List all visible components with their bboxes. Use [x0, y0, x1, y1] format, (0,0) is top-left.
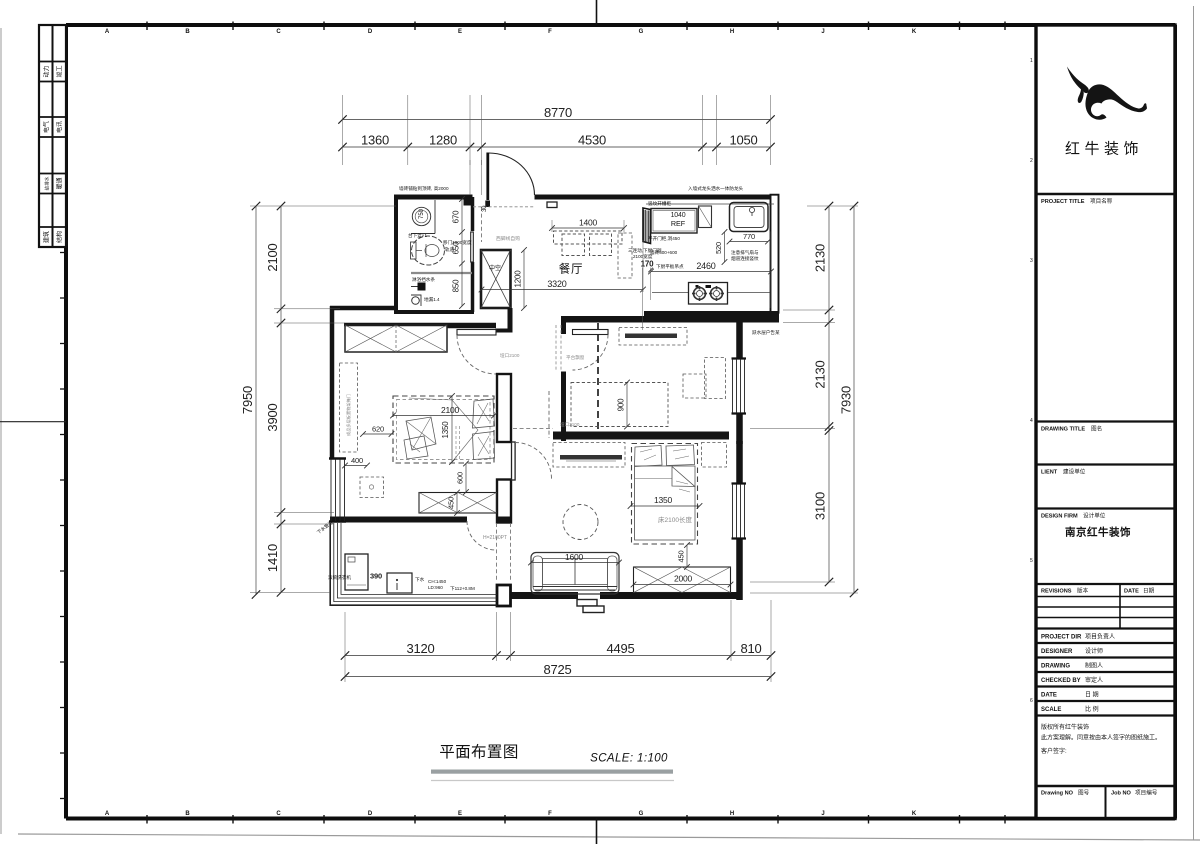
svg-text:动力: 动力: [43, 65, 51, 77]
svg-text:DESIGN FIRM: DESIGN FIRM: [1041, 514, 1078, 520]
svg-text:图名: 图名: [1091, 425, 1102, 433]
svg-text:设计单位: 设计单位: [1083, 512, 1106, 520]
svg-text:建筑: 建筑: [43, 231, 51, 243]
svg-text:床2100长度: 床2100长度: [658, 515, 692, 524]
svg-text:3320: 3320: [547, 279, 566, 289]
svg-text:2000: 2000: [674, 574, 693, 584]
svg-text:入墙式龙头洒水一体防龙头: 入墙式龙头洒水一体防龙头: [688, 185, 744, 192]
svg-text:西脚线自购: 西脚线自购: [496, 235, 520, 242]
svg-text:客户签字:: 客户签字:: [1041, 747, 1067, 755]
svg-text:DRAWING: DRAWING: [1041, 664, 1070, 670]
svg-text:400: 400: [351, 456, 363, 465]
svg-text:淋浴挡水条: 淋浴挡水条: [412, 276, 435, 283]
svg-text:结构: 结构: [56, 231, 64, 243]
svg-text:B: B: [185, 29, 190, 35]
svg-text:4530: 4530: [578, 133, 606, 148]
svg-text:3900: 3900: [265, 403, 280, 431]
svg-text:竖纹开槽柜: 竖纹开槽柜: [648, 200, 671, 207]
svg-text:1040: 1040: [671, 212, 686, 219]
svg-text:C: C: [276, 811, 281, 817]
svg-text:滚筒洗衣机: 滚筒洗衣机: [328, 574, 351, 581]
svg-text:7930: 7930: [839, 386, 854, 414]
svg-text:5: 5: [1030, 558, 1033, 564]
svg-text:E: E: [458, 29, 462, 35]
svg-text:670: 670: [452, 210, 461, 223]
svg-text:770: 770: [743, 232, 755, 241]
svg-text:F: F: [548, 811, 552, 817]
svg-text:DESIGNER: DESIGNER: [1041, 649, 1073, 655]
svg-text:H=2100PT: H=2100PT: [483, 535, 507, 541]
svg-text:电气: 电气: [43, 121, 51, 133]
svg-text:项目负责人: 项目负责人: [1085, 633, 1115, 641]
svg-text:K: K: [912, 811, 917, 817]
svg-text:REF: REF: [671, 219, 686, 228]
svg-text:H: H: [730, 811, 734, 817]
svg-text:6: 6: [1030, 698, 1033, 704]
svg-text:给排水: 给排水: [44, 176, 51, 190]
svg-text:8770: 8770: [544, 105, 572, 120]
svg-text:4495: 4495: [606, 641, 634, 656]
svg-text:2100: 2100: [265, 243, 280, 271]
svg-text:F: F: [548, 29, 552, 35]
svg-text:SCALE: 1:100: SCALE: 1:100: [590, 753, 668, 765]
svg-text:600: 600: [456, 472, 465, 484]
svg-text:注意排气扇与: 注意排气扇与: [731, 249, 759, 256]
svg-text:J: J: [821, 29, 824, 35]
svg-text:1410: 1410: [265, 544, 280, 572]
svg-text:390: 390: [370, 572, 382, 581]
svg-text:下水: 下水: [415, 576, 425, 583]
svg-text:Job NO: Job NO: [1111, 791, 1132, 797]
svg-text:南京红牛装饰: 南京红牛装饰: [1065, 526, 1131, 539]
svg-text:450: 450: [677, 551, 686, 563]
svg-text:比 例: 比 例: [1085, 705, 1099, 713]
svg-text:2460: 2460: [696, 261, 715, 271]
svg-text:垭口2100: 垭口2100: [560, 421, 580, 428]
svg-text:1: 1: [1030, 58, 1033, 64]
svg-text:审定人: 审定人: [1085, 676, 1103, 684]
svg-text:此方案理解。同意按由本人签字的图纸施工。: 此方案理解。同意按由本人签字的图纸施工。: [1041, 734, 1161, 742]
svg-text:建设单位: 建设单位: [1063, 468, 1086, 476]
svg-text:中空: 中空: [489, 264, 501, 272]
svg-text:1050: 1050: [729, 133, 757, 148]
svg-text:C: C: [276, 29, 281, 35]
svg-text:7950: 7950: [240, 386, 255, 414]
svg-text:台下盆×1: 台下盆×1: [408, 232, 427, 239]
svg-text:A: A: [105, 29, 110, 35]
svg-text:版权所有红牛装饰: 版权所有红牛装饰: [1041, 723, 1089, 731]
svg-text:810: 810: [740, 641, 761, 656]
svg-text:2130: 2130: [813, 360, 828, 388]
svg-text:LD:960: LD:960: [428, 585, 443, 590]
svg-text:餐厅: 餐厅: [559, 262, 584, 276]
svg-text:1600: 1600: [565, 552, 584, 562]
svg-text:PROJECT TITLE: PROJECT TITLE: [1041, 199, 1085, 205]
svg-text:CH:1450: CH:1450: [428, 579, 447, 584]
svg-text:3: 3: [1030, 258, 1033, 264]
svg-text:日期: 日期: [1143, 588, 1155, 595]
svg-text:1200: 1200: [514, 270, 523, 288]
svg-text:D: D: [368, 29, 373, 35]
svg-text:K: K: [912, 29, 917, 35]
svg-text:下厨平板吊点: 下厨平板吊点: [656, 263, 684, 270]
svg-text:制图人: 制图人: [1085, 662, 1103, 670]
svg-text:版本: 版本: [1077, 587, 1089, 595]
svg-text:地漏1.4: 地漏1.4: [424, 296, 440, 303]
svg-text:850: 850: [452, 279, 461, 292]
svg-text:项目编号: 项目编号: [1135, 789, 1158, 797]
svg-text:B: B: [185, 811, 190, 817]
svg-text:1350: 1350: [654, 495, 673, 505]
svg-text:CHECKED BY: CHECKED BY: [1041, 678, 1081, 684]
svg-text:650: 650: [452, 241, 461, 254]
svg-text:竣工: 竣工: [56, 65, 64, 77]
svg-text:图号: 图号: [1078, 789, 1090, 797]
svg-text:8725: 8725: [543, 662, 571, 677]
svg-text:日 期: 日 期: [1085, 691, 1099, 699]
svg-text:SCALE: SCALE: [1041, 707, 1061, 713]
svg-text:平面布置图: 平面布置图: [439, 743, 519, 761]
svg-text:D: D: [368, 811, 373, 817]
svg-text:PROJECT DIR: PROJECT DIR: [1041, 635, 1082, 641]
svg-text:垭口2100: 垭口2100: [500, 352, 520, 359]
svg-text:平开门柜,洞450: 平开门柜,洞450: [648, 235, 680, 242]
svg-text:墙砖铺贴到顶砖, 高2000: 墙砖铺贴到顶砖, 高2000: [399, 185, 449, 192]
svg-text:跃水层户告某: 跃水层户告某: [752, 329, 780, 336]
svg-text:30: 30: [482, 205, 488, 212]
svg-text:G: G: [639, 29, 644, 35]
svg-text:2100: 2100: [441, 405, 460, 415]
svg-text:Drawing NO: Drawing NO: [1041, 791, 1074, 797]
svg-text:900: 900: [617, 398, 626, 411]
svg-text:750: 750: [419, 208, 425, 219]
svg-text:1280: 1280: [429, 133, 457, 148]
svg-text:4: 4: [1030, 418, 1033, 424]
svg-text:暖通: 暖通: [56, 177, 64, 189]
svg-text:520: 520: [714, 242, 723, 254]
svg-text:E: E: [458, 811, 462, 817]
svg-text:620: 620: [372, 425, 384, 434]
svg-text:3100: 3100: [813, 492, 828, 520]
svg-text:红牛装饰: 红牛装饰: [1065, 141, 1143, 158]
svg-text:电讯: 电讯: [56, 121, 64, 133]
svg-text:A: A: [105, 811, 110, 817]
svg-text:项目名称: 项目名称: [1090, 197, 1113, 205]
svg-text:DATE: DATE: [1124, 589, 1139, 595]
svg-text:墙砖600+600: 墙砖600+600: [650, 249, 678, 256]
svg-text:J: J: [821, 811, 824, 817]
svg-text:450: 450: [447, 497, 456, 509]
svg-text:烟道连接竖纹: 烟道连接竖纹: [731, 255, 759, 262]
svg-text:H: H: [730, 29, 734, 35]
svg-text:2130: 2130: [813, 244, 828, 272]
svg-text:成品多层板置物架掩门: 成品多层板置物架掩门: [345, 394, 352, 436]
svg-text:REVISIONS: REVISIONS: [1041, 589, 1072, 595]
svg-text:1350: 1350: [441, 421, 450, 439]
svg-text:平台飘窗: 平台飘窗: [566, 354, 585, 361]
svg-text:LIENT: LIENT: [1041, 470, 1058, 476]
svg-text:G: G: [639, 811, 644, 817]
svg-text:1360: 1360: [361, 133, 389, 148]
svg-text:2: 2: [1030, 158, 1033, 164]
svg-text:3120: 3120: [406, 641, 434, 656]
svg-text:DATE: DATE: [1041, 693, 1057, 699]
svg-text:170: 170: [641, 260, 654, 269]
svg-text:设计师: 设计师: [1085, 647, 1103, 655]
svg-text:DRAWING TITLE: DRAWING TITLE: [1041, 427, 1085, 433]
svg-text:1400: 1400: [579, 218, 598, 228]
